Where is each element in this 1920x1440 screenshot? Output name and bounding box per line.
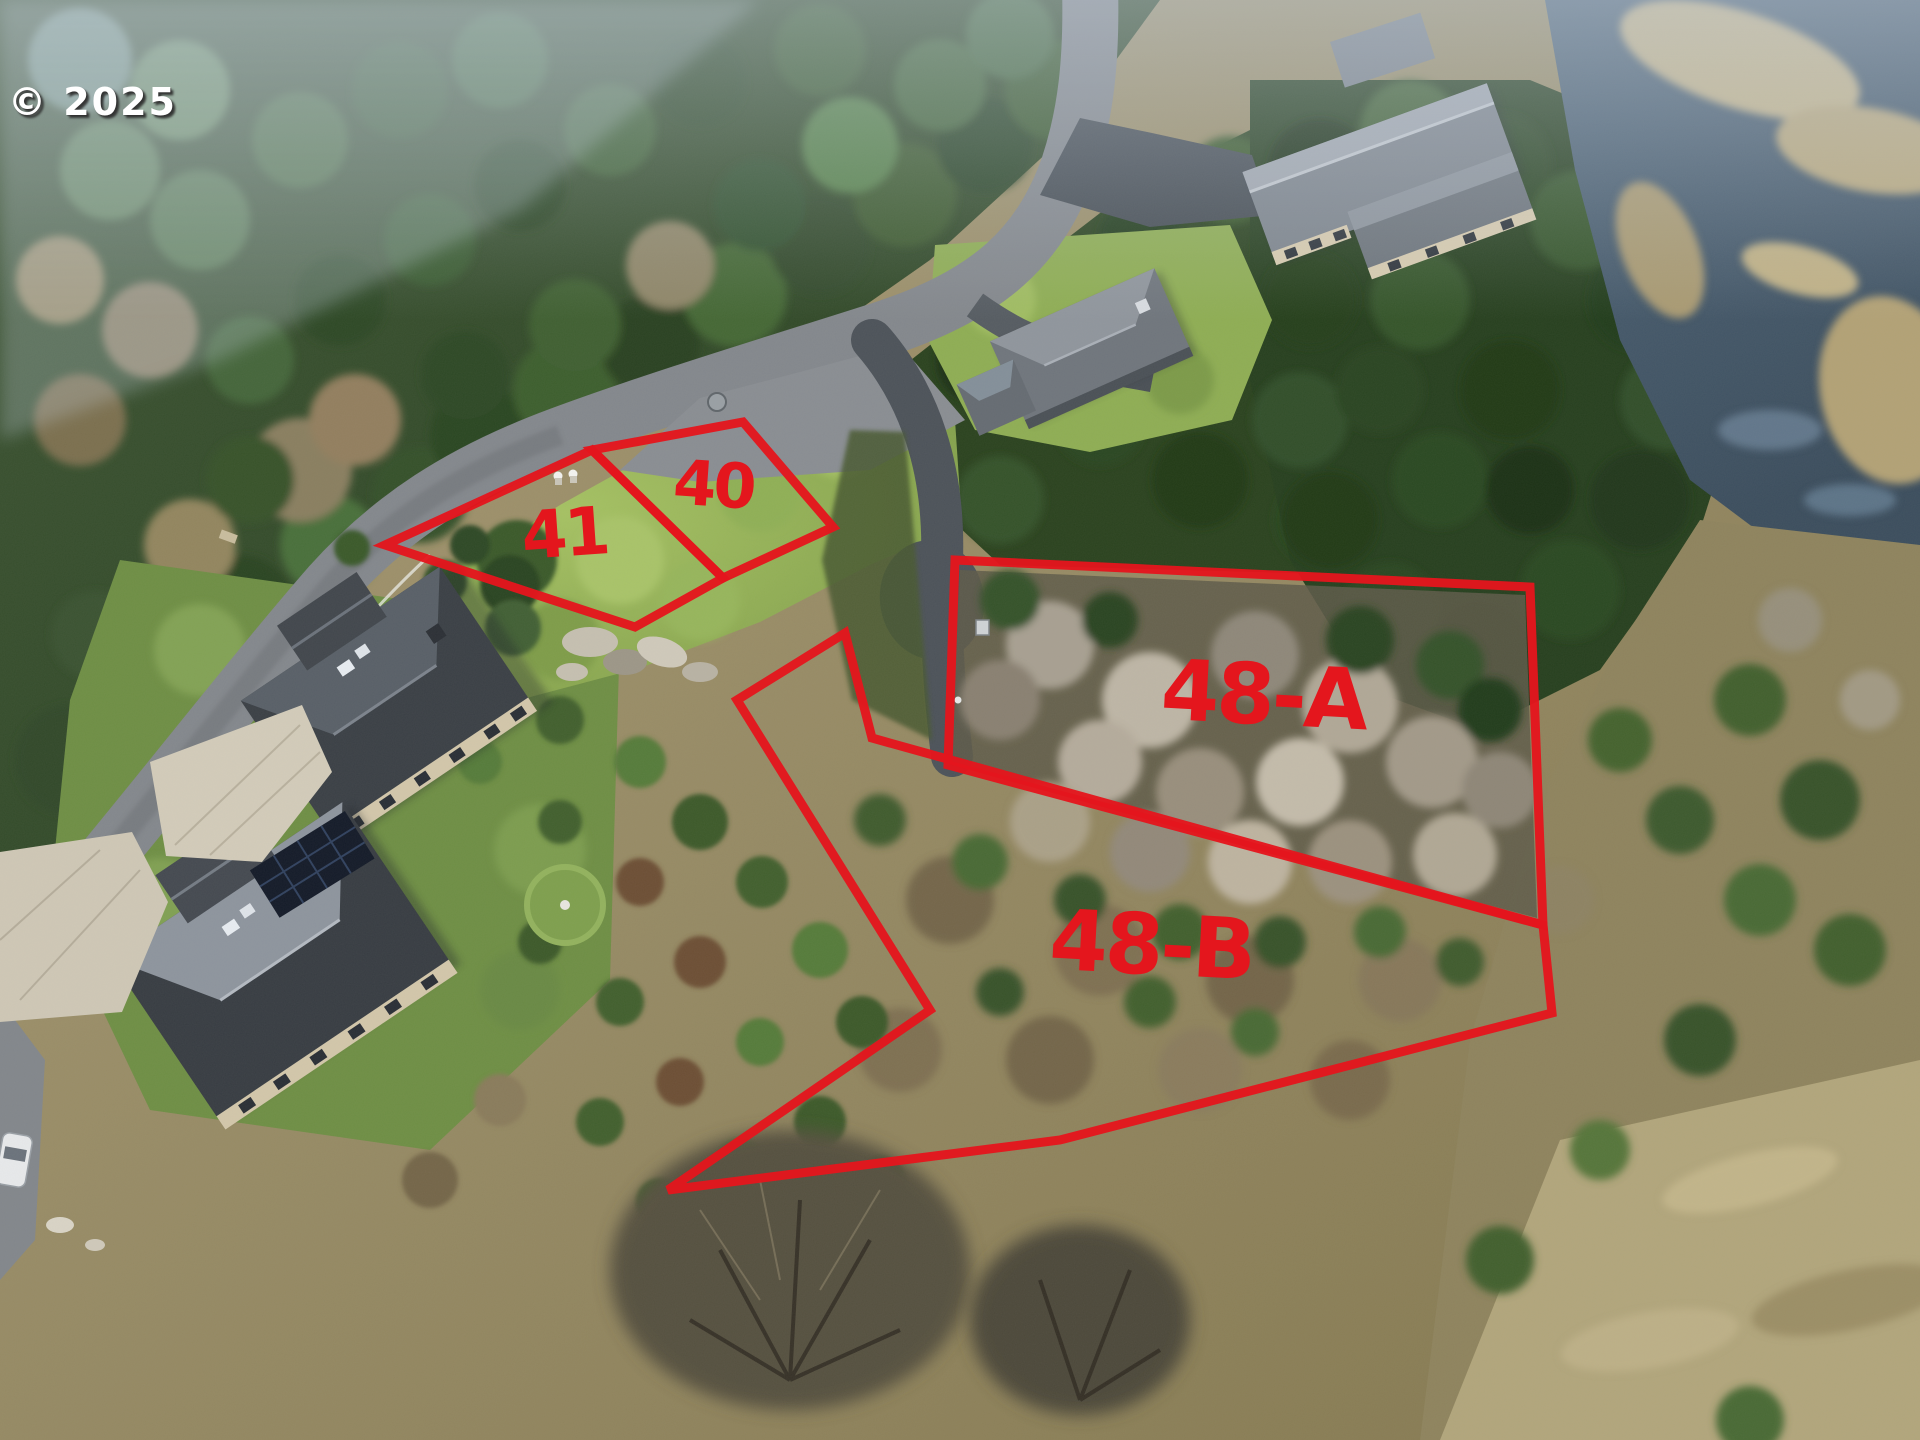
lot-48-A-label: 48-A bbox=[1159, 641, 1372, 750]
lot-41-label: 41 bbox=[519, 492, 610, 575]
copyright-watermark: © 2025 bbox=[8, 80, 177, 124]
aerial-photo: 414048-A48-B © 2025 bbox=[0, 0, 1920, 1440]
lot-40-label: 40 bbox=[671, 445, 757, 523]
lot-48-B-label: 48-B bbox=[1047, 891, 1256, 1000]
lot-annotations: 414048-A48-B bbox=[0, 0, 1920, 1440]
